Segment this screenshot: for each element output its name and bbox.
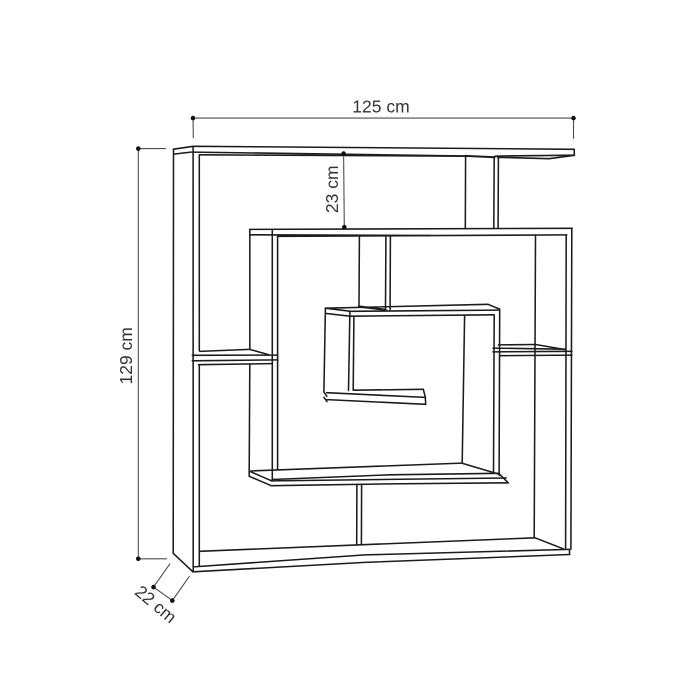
svg-text:23 cm: 23 cm [322,165,342,213]
svg-text:125 cm: 125 cm [352,96,409,116]
svg-text:129 cm: 129 cm [116,327,136,384]
